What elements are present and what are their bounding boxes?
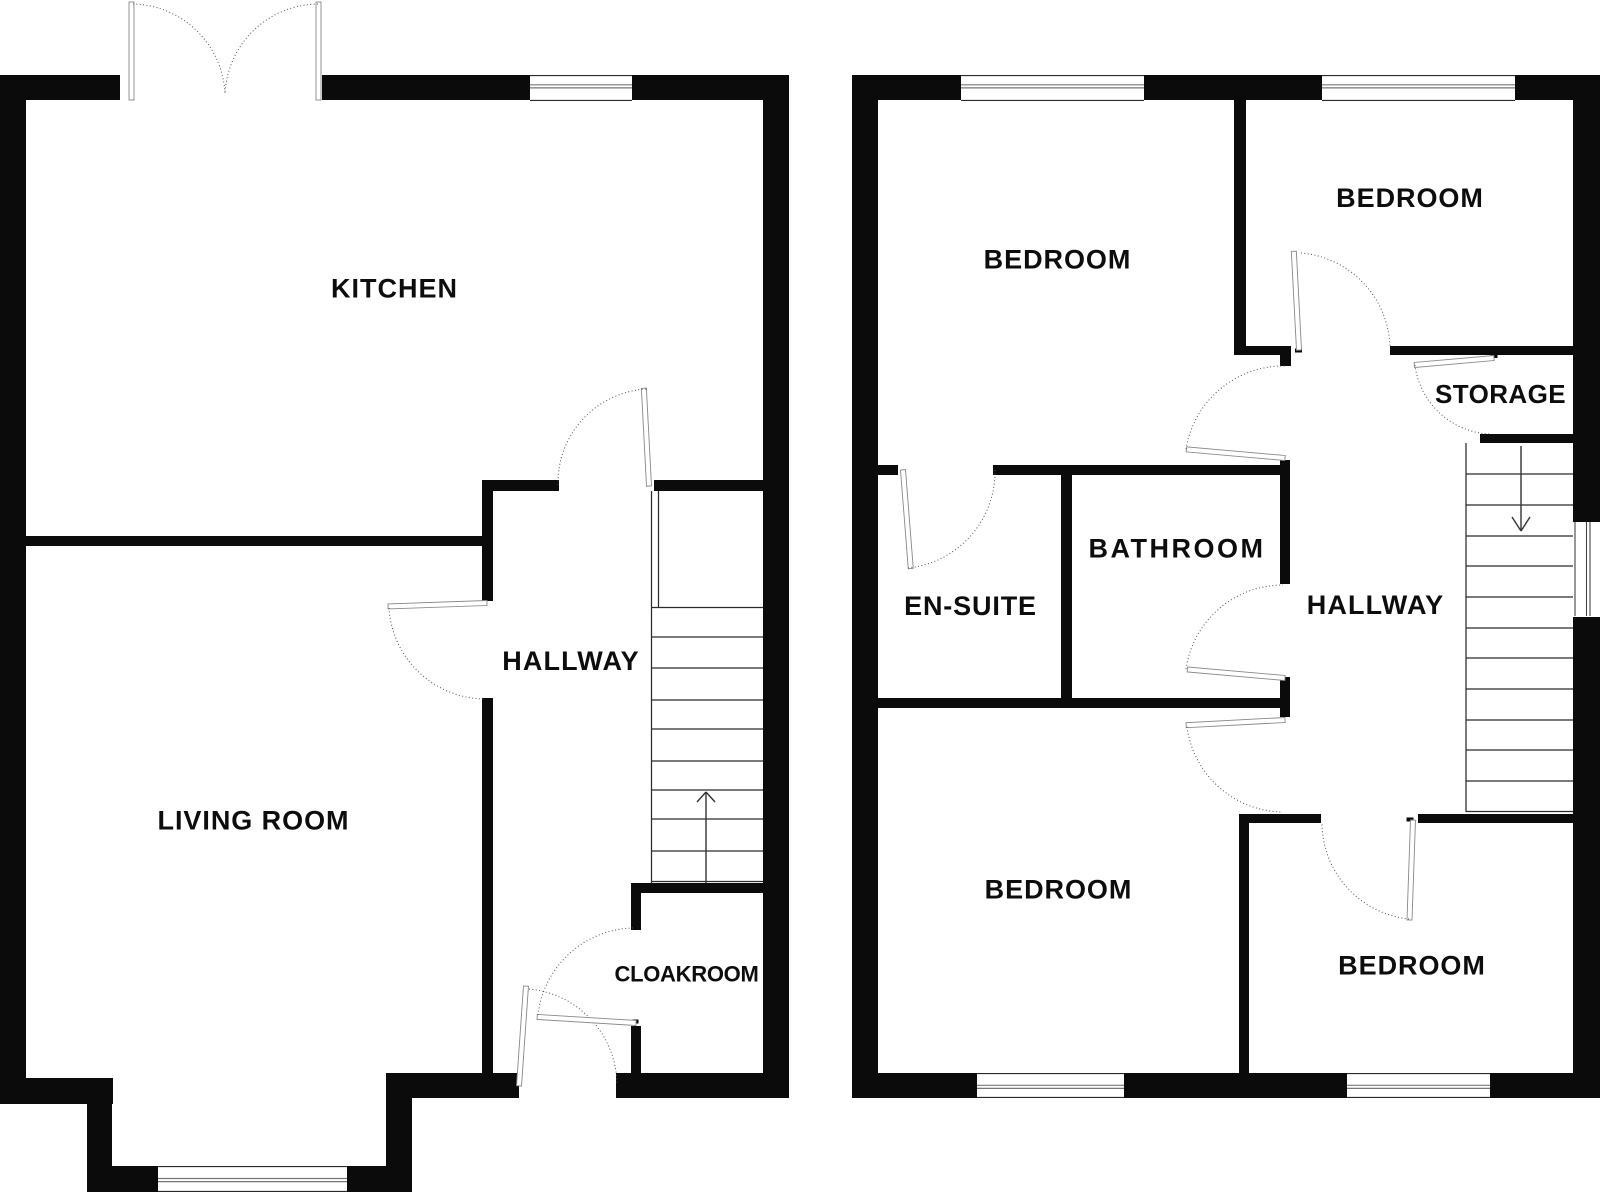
svg-text:EN-SUITE: EN-SUITE	[904, 591, 1037, 621]
svg-text:BEDROOM: BEDROOM	[1336, 183, 1484, 213]
svg-text:KITCHEN: KITCHEN	[331, 274, 458, 304]
svg-text:STORAGE: STORAGE	[1435, 379, 1566, 409]
svg-text:CLOAKROOM: CLOAKROOM	[615, 962, 759, 987]
svg-text:BEDROOM: BEDROOM	[984, 245, 1132, 275]
svg-text:HALLWAY: HALLWAY	[502, 646, 640, 676]
svg-text:BEDROOM: BEDROOM	[1338, 951, 1486, 981]
svg-text:BATHROOM: BATHROOM	[1089, 534, 1266, 564]
svg-text:BEDROOM: BEDROOM	[985, 875, 1133, 905]
svg-text:LIVING ROOM: LIVING ROOM	[158, 806, 350, 836]
svg-text:HALLWAY: HALLWAY	[1307, 590, 1445, 620]
